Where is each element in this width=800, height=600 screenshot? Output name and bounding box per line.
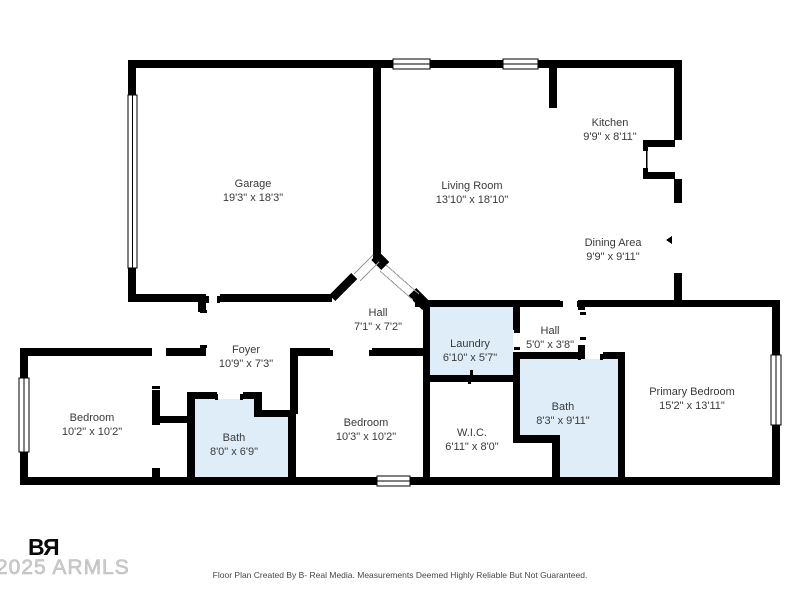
room-dims: 6'11" x 8'0" [445,441,498,453]
room-name: Primary Bedroom [649,386,735,398]
room-name: Kitchen [592,117,629,129]
window-icon [19,378,29,452]
room-label-kitchen: Kitchen 9'9" x 8'11" [583,117,636,143]
room-dims: 6'10" x 5'7" [443,352,497,364]
floor-plan-page: Garage 19'3" x 18'3" Living Room 13'10" … [0,0,800,600]
room-dims: 5'0" x 3'8" [526,339,574,351]
room-dims: 8'3" x 9'11" [536,415,589,427]
room-label-hall-small: Hall 5'0" x 3'8" [526,325,574,351]
window-icon [771,355,781,425]
room-label-hall-main: Hall 7'1" x 7'2" [354,307,402,333]
room-dims: 9'9" x 8'11" [583,131,636,143]
room-label-foyer: Foyer 10'9" x 7'3" [219,344,273,370]
room-label-living-room: Living Room 13'10" x 18'10" [436,180,509,206]
room-name: Bath [552,401,575,413]
room-name: Bedroom [344,417,389,429]
room-name: W.I.C. [457,427,487,439]
garage-door-icon [128,95,137,268]
room-name: Foyer [232,344,260,356]
room-dims: 10'2" x 10'2" [62,426,122,438]
room-dims: 15'2" x 13'11" [659,400,725,412]
room-dims: 10'3" x 10'2" [336,431,396,443]
floor-plan-svg: Garage 19'3" x 18'3" Living Room 13'10" … [0,0,800,600]
room-dims: 8'0" x 6'9" [210,446,258,458]
room-label-dining-area: Dining Area 9'9" x 9'11" [585,237,643,263]
room-label-bedroom-middle: Bedroom 10'3" x 10'2" [336,417,396,443]
room-label-garage: Garage 19'3" x 18'3" [223,178,283,204]
window-icon [393,59,430,69]
room-name: Hall [369,307,388,319]
room-name: Laundry [450,338,490,350]
room-dims: 10'9" x 7'3" [219,358,273,370]
room-dims: 9'9" x 9'11" [586,251,639,263]
window-icon [377,476,410,486]
room-dims: 19'3" x 18'3" [223,192,283,204]
room-label-bedroom-left: Bedroom 10'2" x 10'2" [62,412,122,438]
room-dims: 13'10" x 18'10" [436,194,509,206]
room-name: Bedroom [70,412,115,424]
room-name: Hall [541,325,560,337]
room-label-wic: W.I.C. 6'11" x 8'0" [445,427,498,453]
room-dims: 7'1" x 7'2" [354,321,402,333]
room-name: Bath [223,432,246,444]
room-label-primary-bedroom: Primary Bedroom 15'2" x 13'11" [649,386,735,412]
window-icon [503,59,538,69]
room-name: Dining Area [585,237,643,249]
room-name: Garage [235,178,272,190]
disclaimer-text: Floor Plan Created By B- Real Media. Mea… [0,570,800,580]
room-name: Living Room [441,180,502,192]
